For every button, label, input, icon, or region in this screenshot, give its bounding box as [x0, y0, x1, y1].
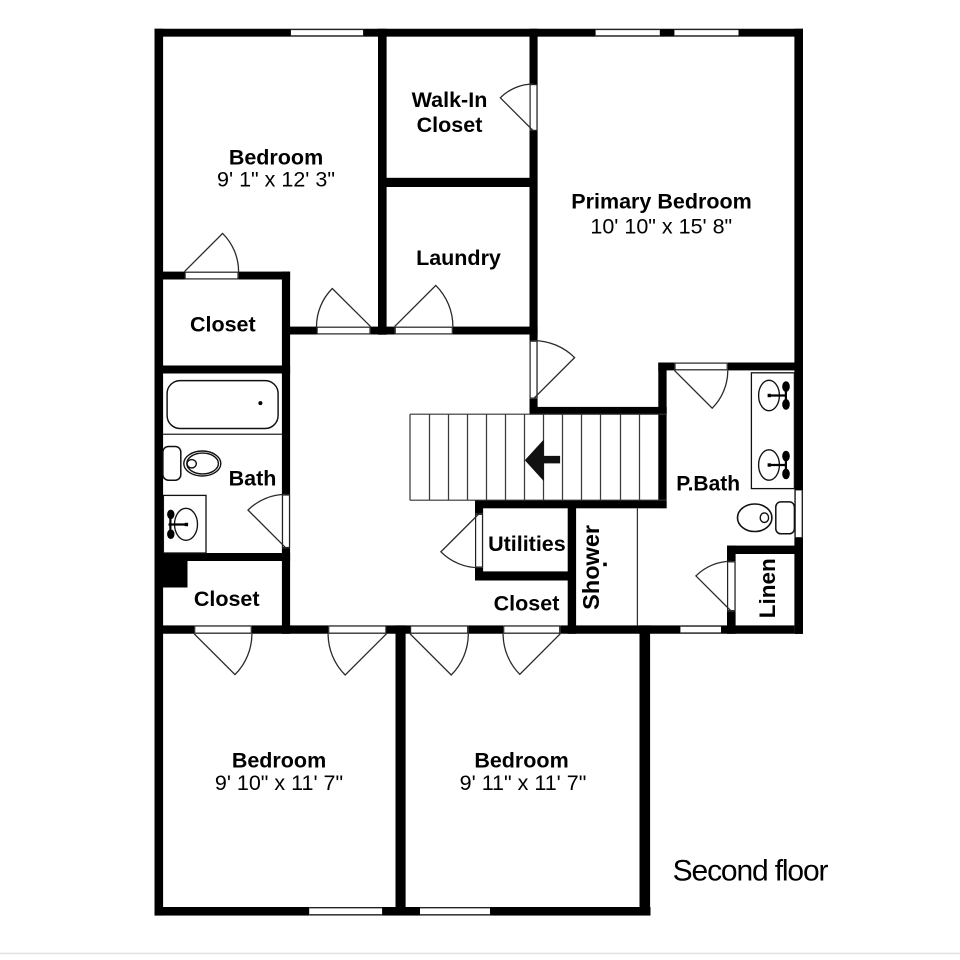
- svg-text:9' 11" x 11' 7": 9' 11" x 11' 7": [460, 771, 587, 795]
- svg-text:Laundry: Laundry: [416, 246, 501, 270]
- svg-text:Walk-In: Walk-In: [412, 88, 488, 112]
- svg-text:Utilities: Utilities: [488, 532, 566, 556]
- svg-text:9' 10" x 11' 7": 9' 10" x 11' 7": [215, 771, 343, 795]
- svg-text:Linen: Linen: [755, 558, 780, 618]
- svg-text:9' 1" x 12' 3": 9' 1" x 12' 3": [217, 167, 335, 191]
- svg-text:Bedroom: Bedroom: [474, 748, 568, 772]
- svg-text:Primary Bedroom: Primary Bedroom: [571, 189, 751, 213]
- svg-text:Closet: Closet: [194, 587, 260, 611]
- svg-text:Closet: Closet: [494, 592, 560, 616]
- svg-text:Bedroom: Bedroom: [232, 748, 326, 772]
- svg-text:10' 10" x 15' 8": 10' 10" x 15' 8": [590, 214, 732, 238]
- svg-text:Shower: Shower: [578, 525, 604, 610]
- svg-text:Bedroom: Bedroom: [229, 145, 323, 169]
- svg-text:Closet: Closet: [417, 113, 483, 137]
- svg-text:Closet: Closet: [190, 312, 256, 336]
- svg-text:Bath: Bath: [229, 467, 277, 491]
- svg-text:P.Bath: P.Bath: [676, 473, 740, 496]
- svg-text:Second floor: Second floor: [673, 855, 829, 888]
